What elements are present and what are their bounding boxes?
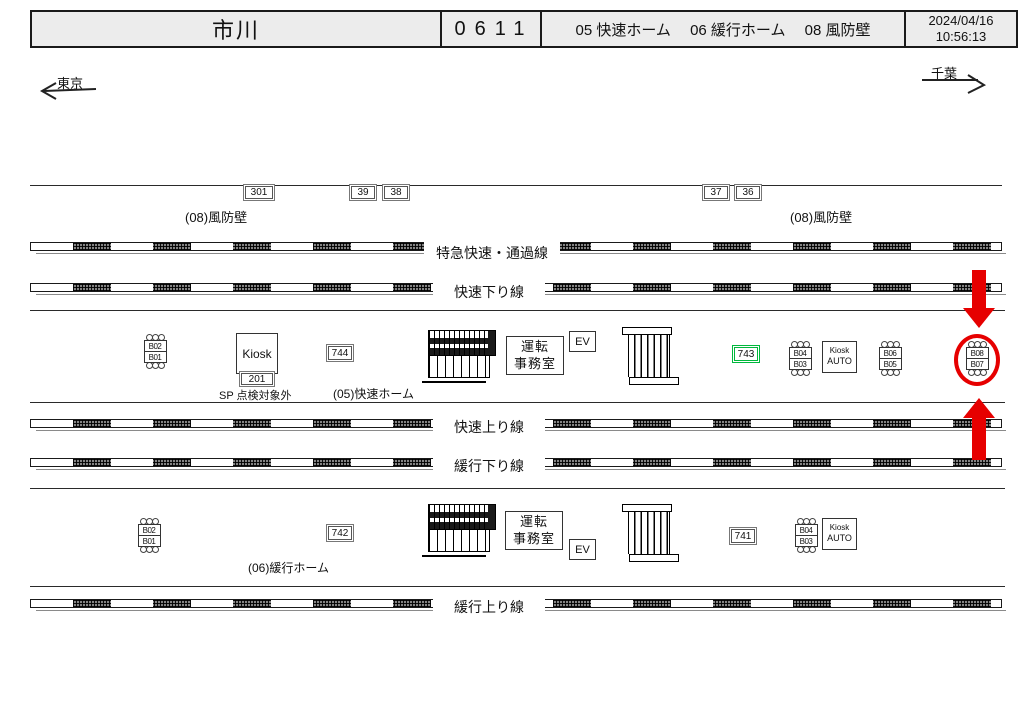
bench-seats-icon [146, 362, 164, 369]
marker-744[interactable]: 744 [328, 346, 352, 360]
kiosk-auto-local: Kiosk AUTO [822, 518, 857, 550]
marker-301[interactable]: 301 [245, 186, 273, 199]
operations-office-rapid: 運転 事務室 [506, 336, 564, 375]
sp-exempt-note: SP 点検対象外 [219, 387, 292, 403]
kiosk-auto-line1: Kiosk [830, 523, 850, 533]
marker-743-selected[interactable]: 743 [734, 347, 758, 361]
track-label-rapid-down: 快速下り線 [433, 281, 545, 303]
equipment-label: B03 [795, 535, 818, 547]
datetime-panel: 2024/04/16 10:56:13 [906, 12, 1016, 46]
office-line1: 運転 [513, 514, 555, 531]
track-label-rapid-up: 快速上り線 [433, 416, 545, 438]
rapid-platform-top-edge [30, 310, 1005, 311]
track-label-local-down: 緩行下り線 [433, 455, 545, 477]
right-arrow-icon [918, 72, 994, 96]
platform-legend: 05 快速ホーム 06 緩行ホーム 08 風防壁 [542, 12, 906, 46]
stairs-east-local-icon [622, 504, 680, 562]
bench-seats-icon [797, 546, 815, 553]
station-code: 0611 [442, 12, 542, 46]
local-platform-label: (06)緩行ホーム [248, 559, 329, 576]
equipment-label: B01 [144, 351, 167, 363]
stairs-east-rapid-icon [622, 327, 680, 385]
track-label-local-up: 緩行上り線 [433, 596, 545, 618]
header-bar: 市川 0611 05 快速ホーム 06 緩行ホーム 08 風防壁 2024/04… [30, 10, 1018, 48]
marker-38[interactable]: 38 [384, 186, 408, 199]
elevator-local: EV [569, 539, 596, 560]
kiosk-auto-line1: Kiosk [830, 346, 850, 356]
marker-741[interactable]: 741 [731, 529, 755, 543]
local-platform-top-edge [30, 488, 1005, 489]
equipment-b02-b01-rapid[interactable]: B02 B01 [143, 334, 167, 369]
marker-36[interactable]: 36 [736, 186, 760, 199]
highlight-circle [954, 334, 1000, 386]
stairs-west-rapid-icon [428, 330, 496, 383]
rapid-platform-bottom-edge [30, 402, 1005, 403]
bench-seats-icon [791, 369, 809, 376]
kiosk-auto-line2: AUTO [827, 533, 852, 545]
office-line2: 事務室 [514, 356, 556, 373]
marker-39[interactable]: 39 [351, 186, 375, 199]
equipment-label: B01 [138, 535, 161, 547]
equipment-b06-b05-rapid[interactable]: B06 B05 [878, 341, 902, 376]
kiosk-auto-rapid: Kiosk AUTO [822, 341, 857, 373]
left-arrow-icon [34, 80, 100, 102]
station-monitor-screen: 市川 0611 05 快速ホーム 06 緩行ホーム 08 風防壁 2024/04… [0, 0, 1024, 724]
stairs-west-local-icon [428, 504, 496, 557]
elevator-rapid: EV [569, 331, 596, 352]
equipment-b04-b03-rapid[interactable]: B04 B03 [788, 341, 812, 376]
windbreak-label-right: (08)風防壁 [790, 207, 852, 226]
kiosk-auto-line2: AUTO [827, 356, 852, 368]
kiosk-rapid: Kiosk [236, 333, 278, 374]
equipment-b02-b01-local[interactable]: B02 B01 [137, 518, 161, 553]
marker-742[interactable]: 742 [328, 526, 352, 540]
local-platform-bottom-edge [30, 586, 1005, 587]
equipment-b04-b03-local[interactable]: B04 B03 [794, 518, 818, 553]
marker-201[interactable]: 201 [241, 373, 273, 385]
windbreak-label-left: (08)風防壁 [185, 207, 247, 226]
track-label-express: 特急快速・通過線 [424, 240, 560, 266]
equipment-label: B03 [789, 358, 812, 370]
bench-seats-icon [140, 546, 158, 553]
rapid-platform-label: (05)快速ホーム [333, 385, 414, 402]
windbreak-wall-line [30, 185, 1002, 186]
equipment-label: B05 [879, 358, 902, 370]
highlight-arrow-up-icon [963, 398, 995, 462]
office-line2: 事務室 [513, 531, 555, 548]
operations-office-local: 運転 事務室 [505, 511, 563, 550]
marker-37[interactable]: 37 [704, 186, 728, 199]
date-text: 2024/04/16 [928, 13, 993, 29]
bench-seats-icon [881, 369, 899, 376]
time-text: 10:56:13 [936, 29, 987, 45]
office-line1: 運転 [514, 339, 556, 356]
station-name: 市川 [32, 12, 442, 46]
highlight-arrow-down-icon [963, 270, 995, 330]
